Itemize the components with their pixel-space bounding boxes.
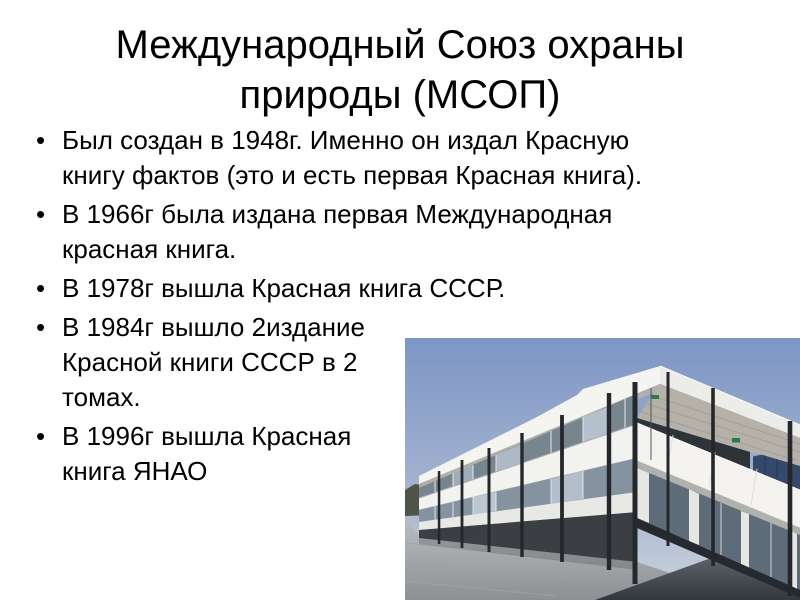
bullet-item-3: • В 1978г вышла Красная книга СССР.: [36, 271, 781, 306]
bullet-item-2: • В 1966г была издана первая Международн…: [36, 197, 781, 267]
bullet-marker: •: [36, 419, 62, 489]
slide-root: Международный Союз охраны природы (МСОП)…: [0, 0, 800, 600]
bullet-line: красная книга.: [62, 232, 781, 267]
bullet-line: Был создан в 1948г. Именно он издал Крас…: [62, 123, 781, 158]
building-illustration: [405, 338, 800, 600]
bullet-marker: •: [36, 123, 62, 193]
exit-sign: [651, 395, 659, 399]
building-photo: [405, 338, 800, 600]
title-line-2: природы (МСОП): [0, 70, 800, 120]
bullet-line: В 1966г была издана первая Международная: [62, 197, 781, 232]
bullet-marker: •: [36, 310, 62, 415]
bullet-line: В 1978г вышла Красная книга СССР.: [62, 271, 781, 306]
bullet-item-1: • Был создан в 1948г. Именно он издал Кр…: [36, 123, 781, 193]
bullet-marker: •: [36, 197, 62, 267]
bullet-text: Был создан в 1948г. Именно он издал Крас…: [62, 123, 781, 193]
bullet-marker: •: [36, 271, 62, 306]
bullet-text: В 1978г вышла Красная книга СССР.: [62, 271, 781, 306]
exit-sign: [732, 438, 740, 443]
bullet-text: В 1966г была издана первая Международная…: [62, 197, 781, 267]
title-line-1: Международный Союз охраны: [0, 20, 800, 70]
bullet-line: книгу фактов (это и есть первая Красная …: [62, 158, 781, 193]
slide-title: Международный Союз охраны природы (МСОП): [0, 20, 800, 120]
